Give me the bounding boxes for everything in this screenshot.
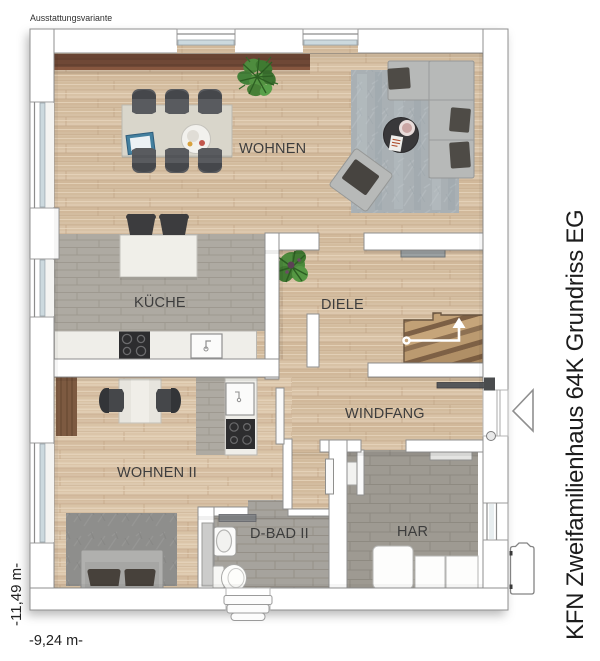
- svg-text:KÜCHE: KÜCHE: [134, 293, 186, 311]
- svg-text:WINDFANG: WINDFANG: [345, 406, 425, 422]
- svg-text:DIELE: DIELE: [321, 297, 364, 313]
- svg-text:HAR: HAR: [397, 524, 428, 540]
- svg-text:KFN Zweifamilienhaus 64K Grund: KFN Zweifamilienhaus 64K Grundriss EG: [562, 210, 589, 640]
- svg-text:D-BAD II: D-BAD II: [250, 526, 309, 542]
- svg-text:WOHNEN II: WOHNEN II: [117, 465, 197, 481]
- svg-text:WOHNEN: WOHNEN: [239, 141, 306, 157]
- svg-text:Ausstattungsvariante: Ausstattungsvariante: [30, 13, 112, 23]
- svg-text:-9,24 m-: -9,24 m-: [29, 633, 83, 649]
- svg-text:-11,49 m-: -11,49 m-: [8, 563, 25, 626]
